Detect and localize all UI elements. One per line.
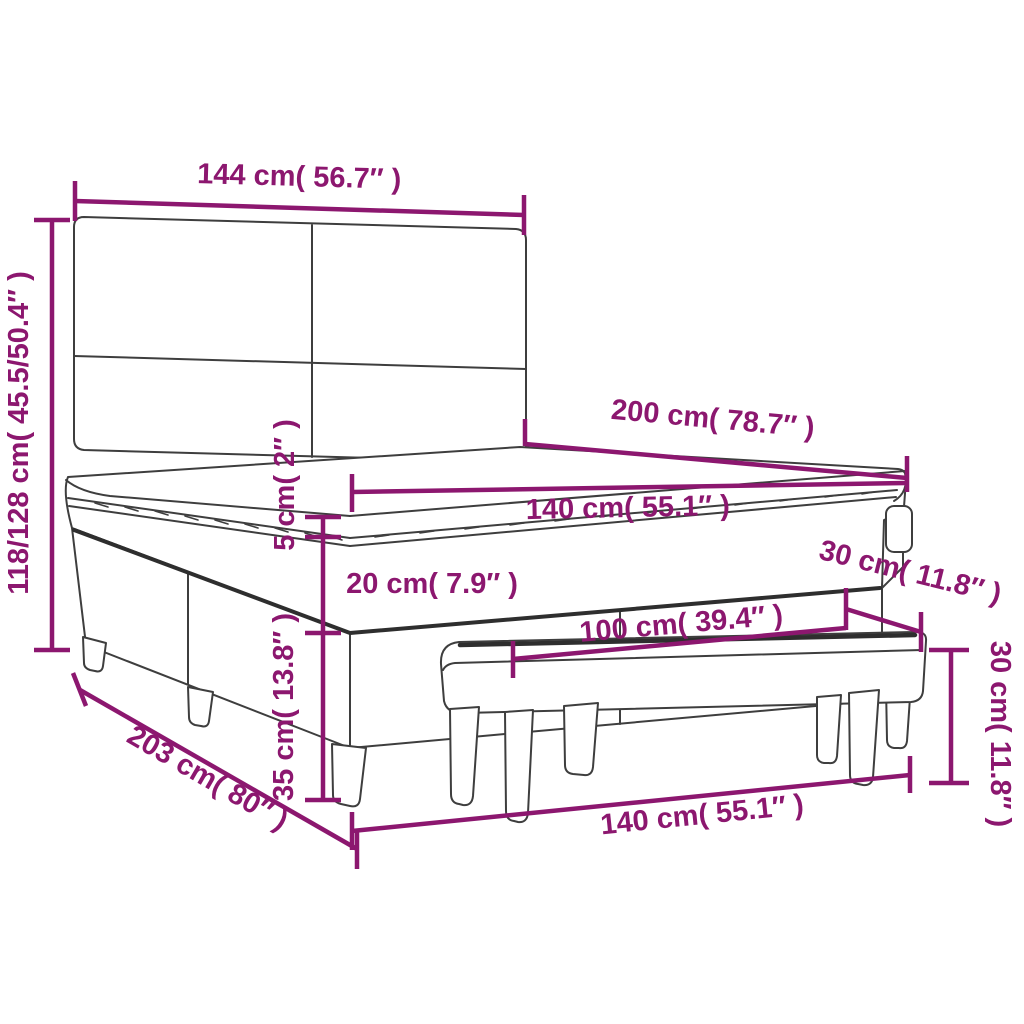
- bed-leg-rear-right: [886, 506, 912, 552]
- bench-leg-3: [564, 703, 598, 775]
- bed-leg-mid-left: [188, 687, 213, 726]
- bed-dimension-drawing: 144 cm( 56.7″ ) 118/128 cm( 45.5/50.4″ )…: [0, 0, 1024, 1024]
- dim-bench-height: [929, 650, 969, 783]
- dimension-diagram: 144 cm( 56.7″ ) 118/128 cm( 45.5/50.4″ )…: [0, 0, 1024, 1024]
- bench-leg-1: [450, 707, 479, 805]
- bed-leg-front-corner: [332, 744, 366, 806]
- bench-leg-4: [817, 695, 841, 763]
- label-headboard-width: 144 cm( 56.7″ ): [197, 158, 402, 196]
- bench-leg-5: [849, 690, 879, 785]
- bed-leg-left: [83, 637, 106, 671]
- label-mattress-thickness: 20 cm( 7.9″ ): [346, 568, 518, 600]
- bench-leg-2: [505, 710, 533, 822]
- dim-bed-height: [34, 220, 70, 650]
- label-bed-length: 200 cm( 78.7″ ): [610, 394, 816, 444]
- label-mattress-width: 140 cm( 55.1″ ): [525, 490, 730, 526]
- label-bed-height: 118/128 cm( 45.5/50.4″ ): [3, 271, 35, 594]
- label-topper-thickness: 5 cm( 2″ ): [269, 419, 301, 551]
- label-bench-height: 30 cm( 11.8″ ): [984, 641, 1016, 827]
- bed-drawing: [66, 217, 926, 822]
- label-base-height: 35 cm( 13.8″ ): [268, 613, 300, 801]
